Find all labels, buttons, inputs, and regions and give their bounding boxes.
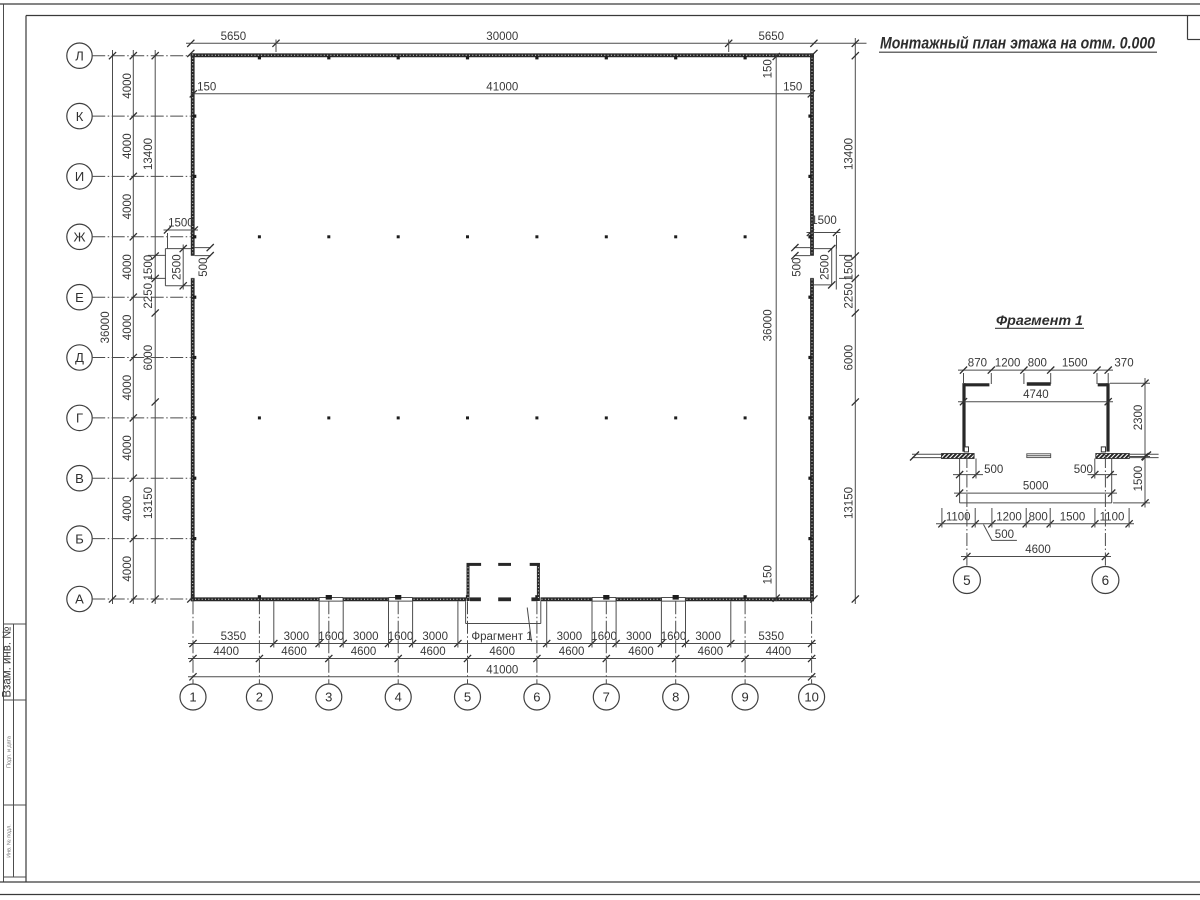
- svg-text:4000: 4000: [122, 254, 134, 280]
- svg-text:1100: 1100: [1100, 511, 1125, 523]
- svg-text:4000: 4000: [122, 435, 134, 461]
- svg-text:И: И: [75, 169, 84, 184]
- svg-text:5650: 5650: [759, 31, 785, 43]
- svg-text:К: К: [76, 109, 84, 124]
- svg-text:1500: 1500: [844, 255, 856, 281]
- svg-text:4400: 4400: [766, 646, 792, 658]
- svg-text:3000: 3000: [557, 631, 583, 643]
- svg-text:Взам. инв. №: Взам. инв. №: [2, 626, 14, 697]
- svg-text:4000: 4000: [122, 375, 134, 401]
- svg-text:2500: 2500: [820, 254, 832, 280]
- svg-text:1200: 1200: [995, 358, 1021, 370]
- svg-text:1600: 1600: [661, 631, 687, 643]
- svg-text:500: 500: [1074, 464, 1093, 476]
- svg-text:Д: Д: [75, 350, 84, 365]
- svg-text:2250: 2250: [143, 283, 155, 309]
- svg-text:13150: 13150: [143, 487, 155, 519]
- svg-text:150: 150: [197, 81, 216, 93]
- svg-text:4000: 4000: [122, 496, 134, 522]
- svg-text:6000: 6000: [844, 345, 856, 371]
- svg-text:5000: 5000: [1023, 481, 1049, 493]
- svg-text:1500: 1500: [1060, 511, 1086, 523]
- svg-text:1500: 1500: [1133, 466, 1145, 492]
- svg-text:4600: 4600: [559, 646, 585, 658]
- svg-text:500: 500: [995, 529, 1014, 541]
- svg-text:Подп. и дата: Подп. и дата: [7, 736, 13, 768]
- svg-text:4600: 4600: [420, 646, 446, 658]
- svg-text:Б: Б: [75, 531, 84, 546]
- svg-text:2300: 2300: [1133, 405, 1145, 431]
- svg-text:4000: 4000: [122, 315, 134, 341]
- svg-text:150: 150: [762, 565, 774, 584]
- svg-text:6: 6: [533, 690, 540, 705]
- svg-text:3000: 3000: [695, 631, 721, 643]
- svg-text:4000: 4000: [122, 556, 134, 582]
- svg-text:150: 150: [762, 59, 774, 78]
- svg-text:2: 2: [256, 690, 263, 705]
- svg-text:41000: 41000: [486, 664, 518, 676]
- svg-text:2500: 2500: [171, 254, 183, 280]
- svg-text:Инв. № подл.: Инв. № подл.: [7, 824, 13, 858]
- svg-text:800: 800: [1028, 358, 1047, 370]
- svg-text:1: 1: [189, 690, 196, 705]
- svg-text:А: А: [75, 592, 84, 607]
- svg-text:500: 500: [198, 258, 210, 277]
- svg-text:3000: 3000: [626, 631, 652, 643]
- svg-text:В: В: [75, 471, 84, 486]
- svg-text:10: 10: [804, 690, 818, 705]
- svg-text:41000: 41000: [486, 81, 518, 93]
- svg-text:500: 500: [792, 258, 804, 277]
- svg-text:1500: 1500: [1062, 358, 1088, 370]
- svg-text:4600: 4600: [628, 646, 654, 658]
- svg-text:1500: 1500: [143, 255, 155, 281]
- svg-text:4000: 4000: [122, 133, 134, 159]
- svg-text:4600: 4600: [698, 646, 724, 658]
- svg-text:9: 9: [741, 690, 748, 705]
- svg-text:Л: Л: [75, 48, 84, 63]
- svg-text:5650: 5650: [221, 31, 247, 43]
- svg-text:8: 8: [672, 690, 679, 705]
- svg-text:4: 4: [395, 690, 402, 705]
- svg-text:13400: 13400: [844, 138, 856, 170]
- svg-text:Г: Г: [76, 411, 83, 426]
- svg-text:4000: 4000: [122, 194, 134, 220]
- svg-text:1200: 1200: [996, 511, 1022, 523]
- svg-text:5350: 5350: [221, 631, 247, 643]
- svg-text:3: 3: [325, 690, 332, 705]
- svg-text:7: 7: [603, 690, 610, 705]
- svg-text:Монтажный план этажа на отм. 0: Монтажный план этажа на отм. 0.000: [880, 35, 1156, 53]
- svg-text:3000: 3000: [284, 631, 310, 643]
- svg-text:30000: 30000: [486, 31, 518, 43]
- svg-text:1500: 1500: [811, 215, 837, 227]
- svg-text:1500: 1500: [168, 218, 194, 230]
- svg-text:1600: 1600: [591, 631, 617, 643]
- svg-text:4600: 4600: [489, 646, 515, 658]
- svg-text:4600: 4600: [351, 646, 377, 658]
- svg-text:2250: 2250: [844, 283, 856, 309]
- svg-text:4600: 4600: [1025, 544, 1051, 556]
- svg-text:1600: 1600: [388, 631, 414, 643]
- svg-text:Е: Е: [75, 290, 84, 305]
- svg-text:500: 500: [984, 464, 1003, 476]
- svg-text:36000: 36000: [762, 309, 774, 341]
- svg-text:5: 5: [963, 573, 971, 588]
- svg-text:5: 5: [464, 690, 471, 705]
- svg-text:6: 6: [1102, 573, 1110, 588]
- svg-text:4600: 4600: [281, 646, 307, 658]
- svg-text:36000: 36000: [100, 311, 112, 343]
- svg-text:150: 150: [783, 81, 802, 93]
- svg-text:13400: 13400: [143, 138, 155, 170]
- svg-text:870: 870: [968, 358, 987, 370]
- svg-text:800: 800: [1029, 511, 1048, 523]
- svg-text:5350: 5350: [758, 631, 784, 643]
- svg-text:13150: 13150: [844, 487, 856, 519]
- svg-text:Ж: Ж: [73, 230, 85, 245]
- svg-text:Фрагмент 1: Фрагмент 1: [996, 312, 1083, 328]
- svg-text:4740: 4740: [1023, 389, 1049, 401]
- svg-text:1600: 1600: [318, 631, 344, 643]
- svg-text:4000: 4000: [122, 73, 134, 99]
- svg-text:6000: 6000: [143, 345, 155, 371]
- svg-text:3000: 3000: [353, 631, 379, 643]
- svg-text:Фрагмент 1: Фрагмент 1: [471, 631, 532, 643]
- svg-text:3000: 3000: [422, 631, 448, 643]
- svg-text:370: 370: [1114, 358, 1133, 370]
- svg-text:4400: 4400: [213, 646, 239, 658]
